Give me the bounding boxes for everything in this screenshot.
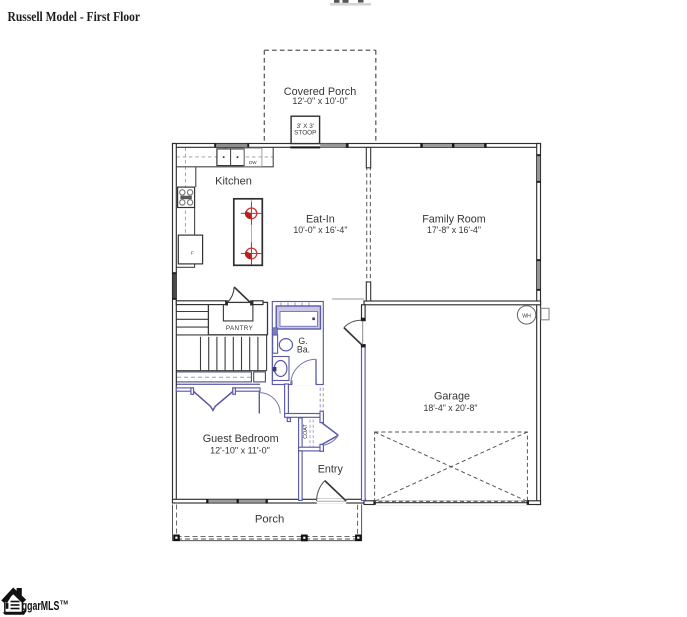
svg-text:TM: TM (60, 601, 68, 607)
svg-text:17'-8" x 16'-4": 17'-8" x 16'-4" (427, 225, 481, 235)
svg-text:DW: DW (249, 160, 257, 165)
svg-text:Kitchen: Kitchen (215, 176, 252, 188)
svg-text:Entry: Entry (318, 463, 344, 475)
svg-text:Family Room: Family Room (422, 213, 486, 225)
svg-text:Guest Bedroom: Guest Bedroom (203, 433, 279, 445)
svg-text:Garage: Garage (434, 391, 470, 403)
svg-text:F: F (191, 251, 194, 257)
svg-text:COAT: COAT (303, 424, 309, 439)
svg-text:10'-0" x 16'-4": 10'-0" x 16'-4" (293, 225, 347, 235)
svg-text:12'-0" x 10'-0": 12'-0" x 10'-0" (292, 96, 347, 106)
svg-text:Russell Model - First Floor: Russell Model - First Floor (8, 10, 141, 25)
svg-text:12'-10" x 11'-0": 12'-10" x 11'-0" (210, 445, 270, 455)
svg-text:Eat-In: Eat-In (306, 213, 335, 225)
svg-text:Ba.: Ba. (297, 345, 310, 355)
svg-text:WH: WH (522, 313, 531, 319)
svg-text:STOOP: STOOP (294, 130, 316, 137)
svg-text:18'-4" x 20'-8": 18'-4" x 20'-8" (423, 403, 477, 413)
svg-text:Porch: Porch (255, 513, 285, 525)
svg-text:ggarMLS: ggarMLS (22, 598, 60, 613)
svg-text:PANTRY: PANTRY (226, 325, 254, 332)
